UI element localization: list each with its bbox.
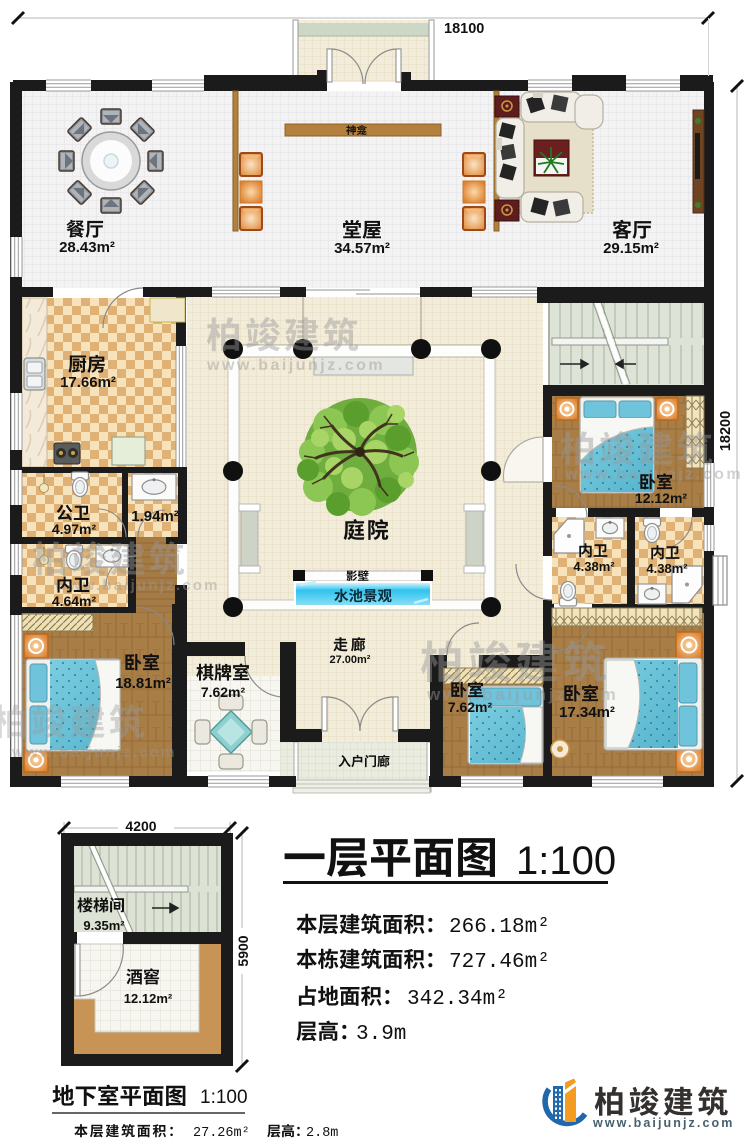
svg-text:4.64m²: 4.64m² [52,593,97,609]
svg-text:34.57m²: 34.57m² [334,240,390,257]
svg-text:27.26m²: 27.26m² [193,1126,250,1141]
svg-text:www.baijunjz.com: www.baijunjz.com [592,1116,734,1130]
svg-text:7.62m²: 7.62m² [448,699,493,715]
svg-text:17.66m²: 17.66m² [60,374,116,391]
svg-text:12.12m²: 12.12m² [124,991,173,1006]
svg-text:17.34m²: 17.34m² [559,704,615,721]
svg-text:7.62m²: 7.62m² [201,684,246,700]
svg-text:5900: 5900 [235,935,251,966]
svg-text:29.15m²: 29.15m² [603,240,659,257]
svg-text:727.46m²: 727.46m² [449,951,550,974]
svg-text:1:100: 1:100 [516,839,616,883]
svg-text:4.38m²: 4.38m² [573,559,615,574]
svg-text:12.12m²: 12.12m² [635,490,687,506]
svg-text:1.94m²: 1.94m² [131,508,179,525]
svg-text:18200: 18200 [718,411,734,451]
svg-text:266.18m²: 266.18m² [449,916,550,939]
svg-text:www.baijunjz.com: www.baijunjz.com [11,744,177,761]
svg-text:4.38m²: 4.38m² [646,561,688,576]
svg-text:18.81m²: 18.81m² [115,675,171,692]
svg-text:27.00m²: 27.00m² [330,654,371,666]
svg-text:342.34m²: 342.34m² [407,988,508,1011]
svg-text:1:100: 1:100 [200,1087,248,1108]
svg-text:www.baijunjz.com: www.baijunjz.com [206,357,385,374]
svg-text:4200: 4200 [125,818,156,834]
svg-text:2.8m: 2.8m [306,1126,338,1141]
svg-text:4.97m²: 4.97m² [52,521,97,537]
svg-text:3.9m: 3.9m [356,1023,406,1046]
svg-text:28.43m²: 28.43m² [59,239,115,256]
svg-text:9.35m²: 9.35m² [83,918,125,933]
svg-text:18100: 18100 [444,21,484,37]
